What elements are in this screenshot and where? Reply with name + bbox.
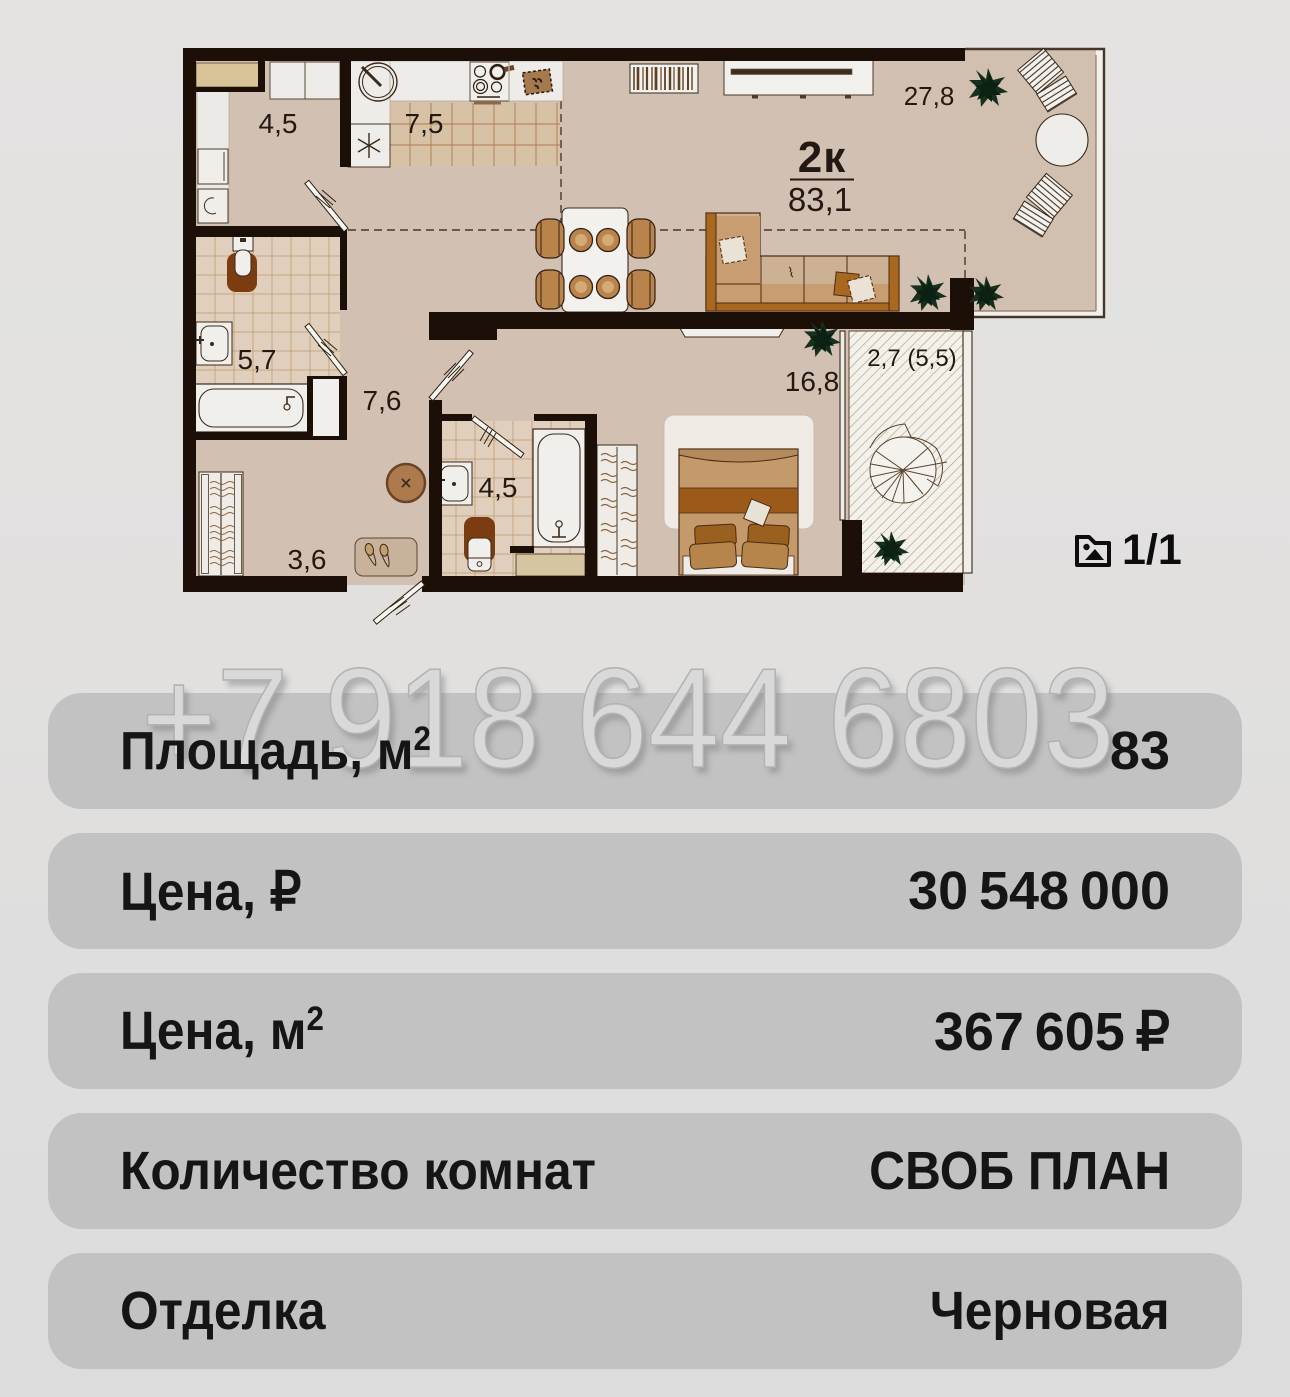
svg-text:3,6: 3,6 — [288, 544, 327, 575]
svg-text:1/1: 1/1 — [1122, 526, 1182, 574]
svg-text:27,8: 27,8 — [904, 81, 955, 111]
svg-text:7,5: 7,5 — [405, 108, 444, 139]
svg-text:5,7: 5,7 — [238, 344, 277, 375]
svg-text:2,7 (5,5): 2,7 (5,5) — [867, 345, 956, 372]
svg-text:4,5: 4,5 — [479, 472, 518, 503]
svg-text:16,8: 16,8 — [785, 366, 840, 397]
svg-text:7,6: 7,6 — [363, 385, 402, 416]
svg-text:4,5: 4,5 — [259, 108, 298, 139]
svg-text:2к: 2к — [798, 133, 847, 182]
svg-text:83,1: 83,1 — [788, 181, 852, 218]
